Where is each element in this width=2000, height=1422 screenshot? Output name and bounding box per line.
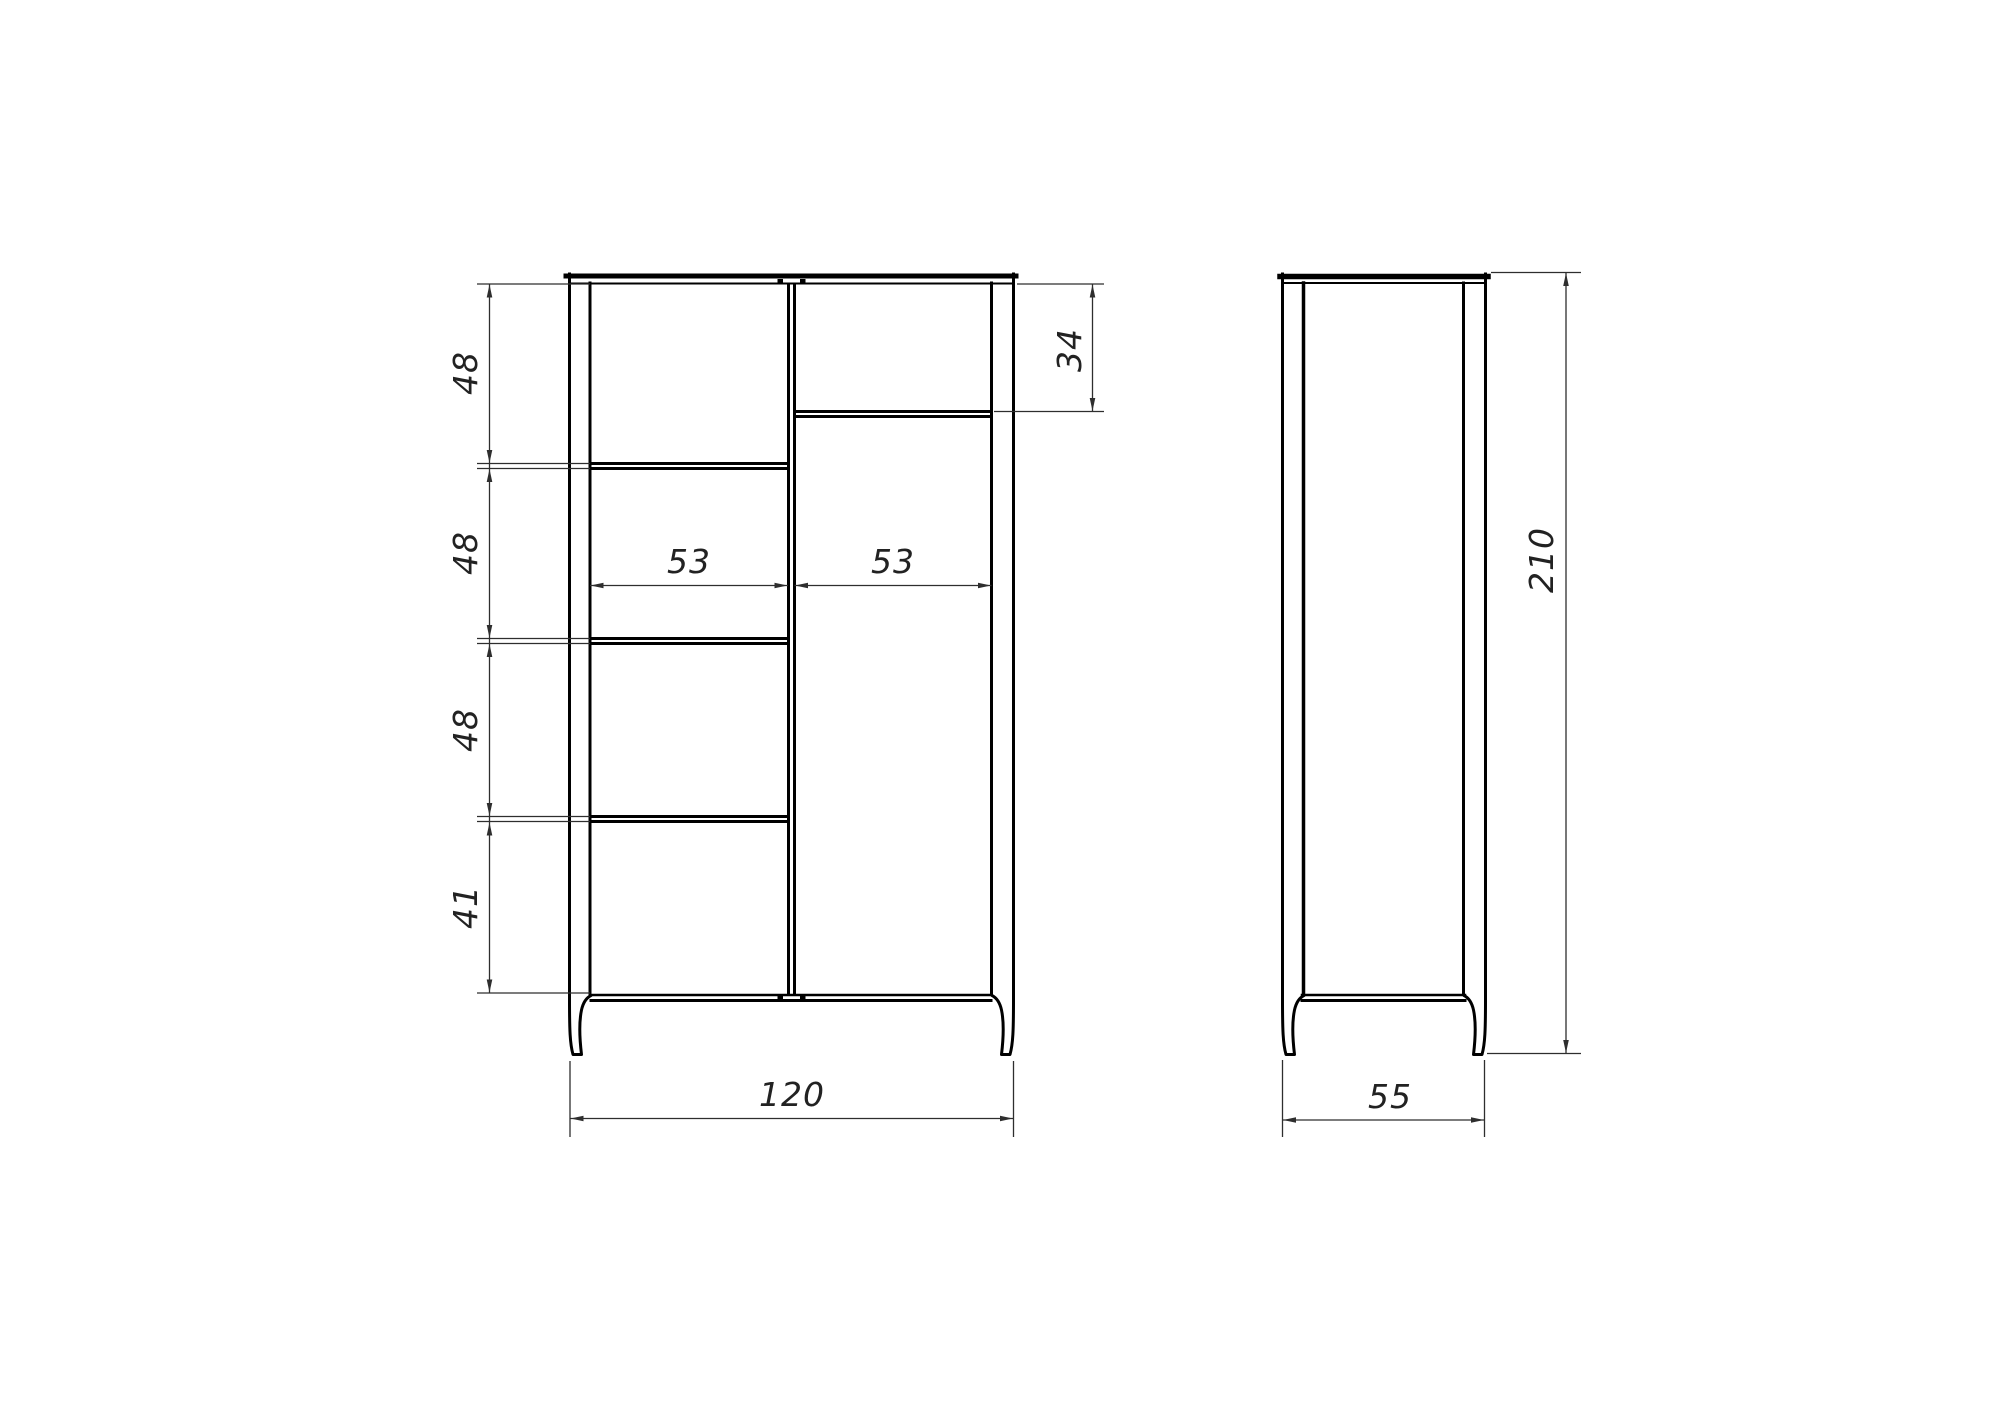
arrowhead-up: [487, 469, 493, 482]
arrowhead-down: [1563, 1040, 1569, 1053]
dim-label-53-left: 53: [667, 542, 711, 581]
arrowhead-down: [1090, 398, 1096, 411]
arrowhead-left: [795, 583, 808, 589]
dim-label-210: 210: [1522, 527, 1561, 593]
front-view: [566, 274, 1016, 1055]
arrowhead-down: [487, 450, 493, 463]
front-right-leg: [992, 996, 1014, 1055]
side-front-leg: [1283, 996, 1305, 1055]
dim-label-48-lower: 48: [446, 708, 485, 752]
arrowhead-left: [571, 1116, 584, 1122]
front-left-leg: [570, 996, 592, 1055]
dimension-lines: [477, 273, 1581, 1138]
arrowhead-up: [1090, 285, 1096, 298]
arrowhead-up: [487, 285, 493, 298]
dimension-labels: 48 48 48 41 34 53 53 120 55 210: [446, 328, 1561, 1116]
dim-label-120: 120: [759, 1075, 825, 1114]
arrowhead-up: [487, 644, 493, 657]
side-view: [1280, 274, 1488, 1055]
arrowhead-left: [591, 583, 604, 589]
arrowhead-left: [1283, 1117, 1296, 1123]
connector-mark: [778, 995, 784, 1001]
connector-mark: [800, 279, 806, 285]
side-back-leg: [1464, 996, 1486, 1055]
arrowhead-right: [1471, 1117, 1484, 1123]
dim-label-53-right: 53: [871, 542, 915, 581]
arrowhead-up: [487, 823, 493, 836]
dim-label-48-middle: 48: [446, 531, 485, 575]
arrowhead-right: [1000, 1116, 1013, 1122]
arrowhead-right: [978, 583, 991, 589]
dim-label-41: 41: [446, 885, 485, 929]
connector-mark: [800, 995, 806, 1001]
arrowhead-up: [1563, 273, 1569, 286]
arrowhead-down: [487, 980, 493, 993]
connector-mark: [778, 279, 784, 285]
wardrobe-technical-drawing: 48 48 48 41 34 53 53 120 55 210: [0, 0, 2000, 1422]
dim-label-55: 55: [1368, 1077, 1412, 1116]
arrowhead-right: [775, 583, 788, 589]
dim-label-34: 34: [1050, 328, 1089, 372]
arrowhead-down: [487, 803, 493, 816]
arrowhead-down: [487, 625, 493, 638]
drawing-canvas: 48 48 48 41 34 53 53 120 55 210: [0, 0, 2000, 1422]
dim-label-48-top: 48: [446, 351, 485, 395]
